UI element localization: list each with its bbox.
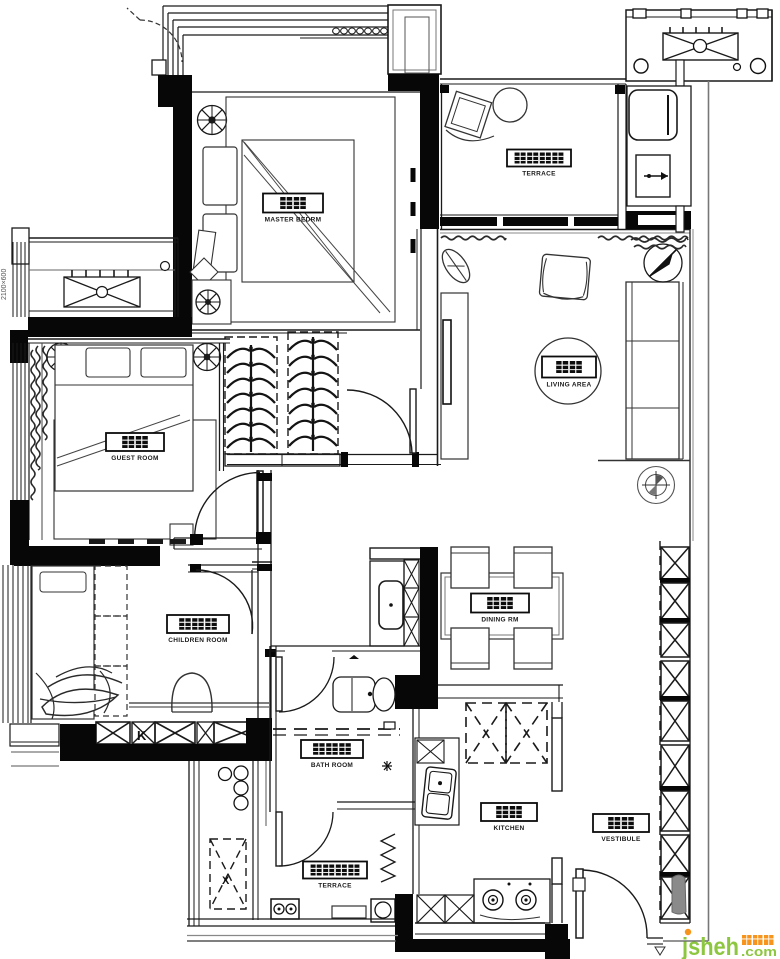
svg-text:BATH ROOM: BATH ROOM <box>311 762 353 769</box>
svg-text:TERRACE: TERRACE <box>522 171 556 178</box>
svg-text:.com: .com <box>741 944 777 959</box>
svg-text:X: X <box>222 875 230 887</box>
svg-text:KITCHEN: KITCHEN <box>494 825 525 832</box>
svg-text:K: K <box>137 728 147 743</box>
svg-text:jsheh: jsheh <box>681 933 739 959</box>
svg-text:TERRACE: TERRACE <box>318 883 352 890</box>
svg-text:GUEST ROOM: GUEST ROOM <box>111 455 158 462</box>
svg-text:VESTIBULE: VESTIBULE <box>601 836 641 843</box>
svg-text:DINING RM: DINING RM <box>481 617 518 624</box>
svg-text:2100×600: 2100×600 <box>1 269 8 300</box>
svg-text:MASTER BEDRM: MASTER BEDRM <box>265 217 322 224</box>
svg-text:LIVING AREA: LIVING AREA <box>547 382 592 389</box>
svg-text:CHILDREN ROOM: CHILDREN ROOM <box>168 637 228 644</box>
